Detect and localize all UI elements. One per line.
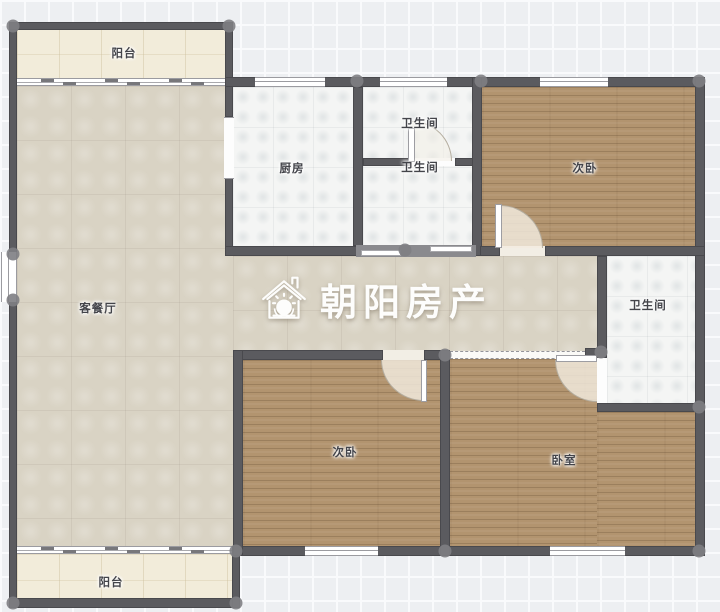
window-band-balcony-top [17,78,225,86]
wall-node [7,294,20,307]
wall-bottom-main [233,546,705,556]
wall-node [7,597,20,610]
wall-node [230,545,243,558]
wall-node [595,346,608,359]
door-leaf-bedroom-bottom-middle [421,360,427,402]
window-bottom-bedroom-middle [305,546,378,556]
label-bedroom-bottom-middle: 次卧 [333,444,358,460]
window-bottom-bedroom-right [550,546,625,556]
wall-node [475,75,488,88]
room-balcony-bottom [17,554,232,598]
room-bathroom-right [607,256,695,403]
wall-bedroom-bm-left [233,350,243,556]
wall-bedroom-tr-bottom-b [545,246,705,256]
door-leaf-bedroom-top-right [495,204,502,248]
floor-plan-canvas: 阳台 厨房 卫生间 卫生间 次卧 客餐厅 卫生间 次卧 卧室 阳台 朝阳房产 [0,0,720,612]
wall-node [7,20,20,33]
wall-node [693,401,706,414]
window-top-kitchen [255,77,325,87]
wall-balcony-bottom [9,598,240,608]
sliding-door-panel [361,250,401,256]
doorway-bathroom-right [597,358,607,403]
room-living-dining [17,86,233,546]
label-bathroom-mid: 卫生间 [401,159,439,175]
window-band-balcony-bottom [17,546,232,554]
wall-kitchen-right [353,87,363,246]
wall-node [693,75,706,88]
wall-right [695,77,705,556]
wall-bedroom-bm-top-a [233,350,383,360]
door-leaf-bathroom-right [556,355,597,362]
brand-watermark: 朝阳房产 [258,272,492,326]
wall-bathroom-right-left [597,256,607,358]
wall-node [693,545,706,558]
wall-node [399,244,412,257]
window-band-midline [17,82,225,83]
wall-balcony-top [9,22,233,30]
label-balcony-top: 阳台 [112,45,137,61]
wall-bathroom-right-bottom [597,403,705,412]
label-balcony-bottom: 阳台 [99,574,124,590]
label-bathroom-top: 卫生间 [401,115,439,131]
label-living-dining: 客餐厅 [79,300,117,316]
window-top-bathroom [380,77,447,87]
wall-node [7,248,20,261]
wall-node [351,75,364,88]
house-sun-icon [258,273,310,325]
opening-kitchen-entry [224,117,234,179]
window-band-midline [17,550,232,551]
door-leaf-bathroom-top [408,128,415,162]
doorway-bedroom-bottom-middle [383,350,424,360]
room-bedroom-bottom-right-ext [597,412,695,546]
wall-kitchen-left-upper [225,22,233,117]
brand-name: 朝阳房产 [320,272,492,326]
label-bedroom-top-right: 次卧 [573,160,598,176]
sliding-door-bathroom-mid [356,245,476,257]
wall-bedroom-divider [440,350,450,556]
wall-node [439,349,452,362]
label-kitchen: 厨房 [280,160,305,176]
wall-node [223,20,236,33]
wall-node [230,597,243,610]
wall-bath-bedroom-vert [472,77,482,256]
wall-left [9,22,17,608]
wall-kitchen-left-lower [225,177,233,252]
window-top-bedroom [540,77,608,87]
sliding-door-panel [430,246,472,252]
label-bathroom-right: 卫生间 [629,297,667,313]
label-bedroom-bottom-right: 卧室 [552,452,577,468]
wall-node [439,545,452,558]
